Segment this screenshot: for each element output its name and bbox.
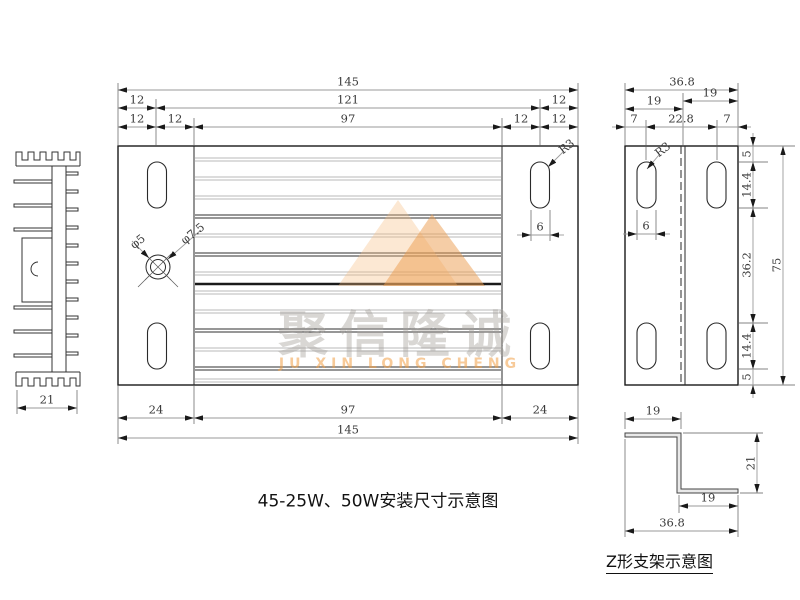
- dim-main-top-row3-a: 12: [130, 113, 145, 125]
- dim-main-top-row3-e: 12: [552, 113, 567, 125]
- dim-z-web-height: 21: [745, 456, 757, 471]
- drawing-sheet: 聚信隆诚 JU XIN LONG CHENG 145 12 121 12 12 …: [0, 0, 800, 600]
- dim-main-bot-c: 24: [533, 404, 548, 416]
- dim-main-top-row2-a: 12: [130, 94, 145, 106]
- z-bracket-view: [625, 412, 763, 537]
- z-bracket-title: Z形支架示意图: [606, 548, 713, 574]
- dim-side-seg-e: 5: [741, 373, 753, 380]
- dim-main-top-row3-b: 12: [168, 113, 183, 125]
- dim-main-top-overall: 145: [337, 76, 359, 88]
- heatsink-profile: [14, 152, 80, 414]
- dim-side-top-row2-a: 19: [647, 95, 662, 107]
- dim-side-seg-d: 14.4: [741, 333, 753, 359]
- dim-side-top-row2-b: 19: [703, 87, 718, 99]
- main-title: 45-25W、50W安装尺寸示意图: [258, 487, 499, 512]
- dim-side-slot-width: 6: [642, 220, 649, 232]
- dim-main-top-row3-d: 12: [514, 113, 529, 125]
- dim-side-seg-c: 36.2: [741, 252, 753, 278]
- dim-main-bot-overall: 145: [337, 424, 359, 436]
- dim-side-overall: 75: [771, 258, 783, 273]
- dim-main-slot-width: 6: [536, 221, 543, 233]
- dim-z-bottom-flange: 19: [701, 492, 716, 504]
- dim-side-top-row3-a: 7: [630, 113, 637, 125]
- dim-main-bot-b: 97: [341, 404, 356, 416]
- main-plate-view: [118, 83, 578, 444]
- dim-side-top-row3-b: 22.8: [668, 113, 694, 125]
- dim-side-seg-b: 14.4: [741, 172, 753, 198]
- dim-main-bot-a: 24: [149, 404, 164, 416]
- dim-z-top-flange: 19: [646, 405, 661, 417]
- dim-side-top-row3-c: 7: [723, 113, 730, 125]
- dim-main-top-row2-c: 12: [552, 94, 567, 106]
- dim-z-overall: 36.8: [659, 517, 685, 529]
- dim-side-top-overall: 36.8: [669, 76, 695, 88]
- dim-main-top-row2-b: 121: [337, 94, 359, 106]
- dim-heatsink-width: 21: [40, 394, 55, 406]
- dim-main-top-row3-c: 97: [341, 113, 356, 125]
- dim-side-seg-a: 5: [741, 150, 753, 157]
- side-plate-view: [612, 83, 795, 398]
